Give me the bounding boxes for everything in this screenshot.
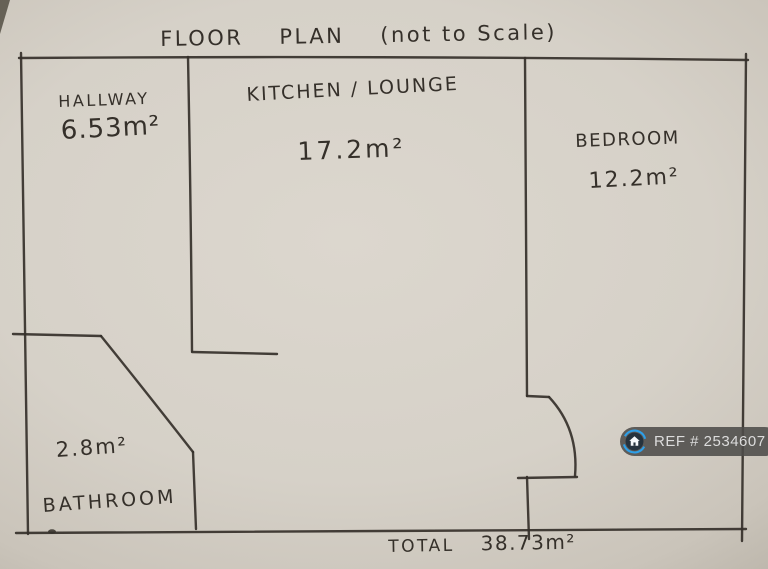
plan-title-word: FLOOR	[160, 26, 244, 51]
bathroom-side-wall	[193, 452, 196, 529]
hallway-area-value: 6.53m²	[60, 111, 161, 146]
bedroom-divider-wall	[525, 58, 527, 396]
plan-title-word: PLAN	[279, 24, 344, 49]
outer-wall-left	[21, 53, 28, 534]
ref-badge: REF # 2534607	[620, 427, 768, 456]
bedroom-door-stub	[527, 396, 549, 397]
outer-wall-top	[19, 57, 748, 60]
kitchen-lounge-area-value: 17.2m²	[297, 133, 406, 166]
hallway-divider-wall	[188, 57, 192, 351]
outer-wall-right	[742, 54, 746, 541]
house-icon	[622, 429, 647, 454]
total-area-value: 38.73m²	[480, 530, 576, 556]
bedroom-door-arc	[549, 397, 575, 476]
plan-title-note: (not to Scale)	[380, 20, 557, 47]
total-label: TOTAL	[388, 536, 455, 557]
ink-blob	[48, 529, 56, 533]
bedroom-area-value: 12.2m²	[588, 164, 680, 194]
bedroom-room-label: BEDROOM	[575, 127, 680, 152]
hallway-door-stub	[192, 352, 277, 354]
floorplan-photo: FLOOR PLAN (not to Scale) HALLWAY 6.53m²…	[0, 0, 768, 569]
outer-wall-bottom	[16, 529, 746, 533]
total-area: TOTAL 38.73m²	[388, 530, 576, 557]
bathroom-area-value: 2.8m²	[55, 433, 129, 462]
hallway-room-label: HALLWAY	[58, 89, 150, 111]
ref-number: REF # 2534607	[654, 433, 766, 450]
